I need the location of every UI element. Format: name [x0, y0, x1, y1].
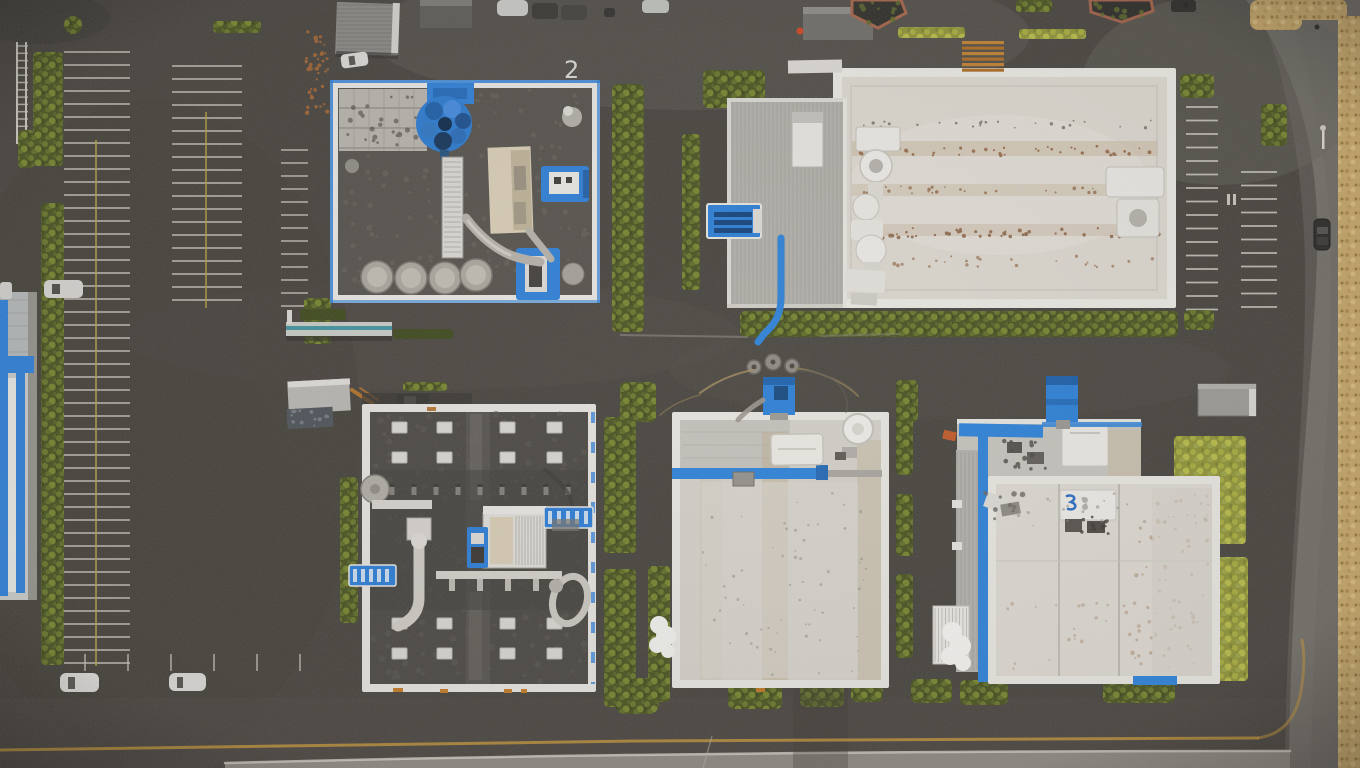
aerial-photograph: 2 — [0, 0, 1360, 768]
film-grain — [0, 0, 1360, 768]
aerial-photo-canvas: Aerial drone view of an industrial busin… — [0, 0, 1360, 768]
